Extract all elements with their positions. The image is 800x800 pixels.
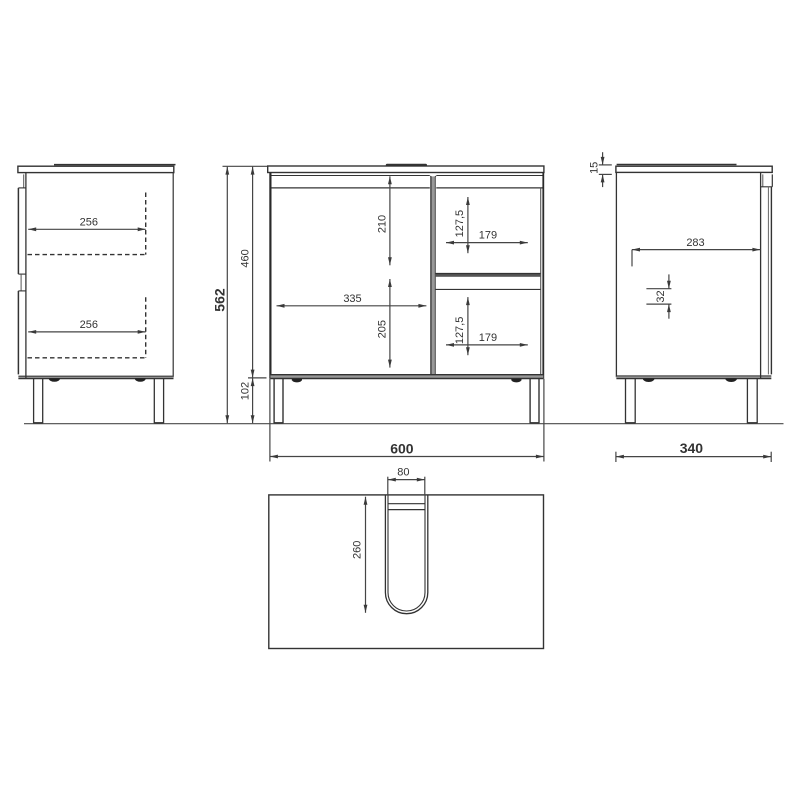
svg-text:205: 205	[376, 320, 388, 338]
svg-text:260: 260	[352, 541, 364, 559]
svg-text:335: 335	[343, 293, 361, 305]
svg-text:600: 600	[390, 440, 414, 456]
svg-text:562: 562	[211, 288, 227, 312]
svg-text:179: 179	[479, 332, 497, 344]
svg-text:460: 460	[239, 249, 251, 267]
svg-text:256: 256	[80, 217, 98, 229]
svg-text:283: 283	[686, 237, 704, 249]
svg-text:340: 340	[680, 440, 704, 456]
svg-text:15: 15	[589, 162, 601, 174]
svg-text:102: 102	[239, 382, 251, 400]
svg-text:127,5: 127,5	[454, 317, 466, 345]
svg-text:32: 32	[655, 290, 667, 302]
svg-text:127,5: 127,5	[454, 210, 466, 238]
svg-text:210: 210	[376, 215, 388, 233]
svg-text:179: 179	[479, 230, 497, 242]
svg-text:256: 256	[80, 319, 98, 331]
svg-text:80: 80	[397, 467, 409, 479]
